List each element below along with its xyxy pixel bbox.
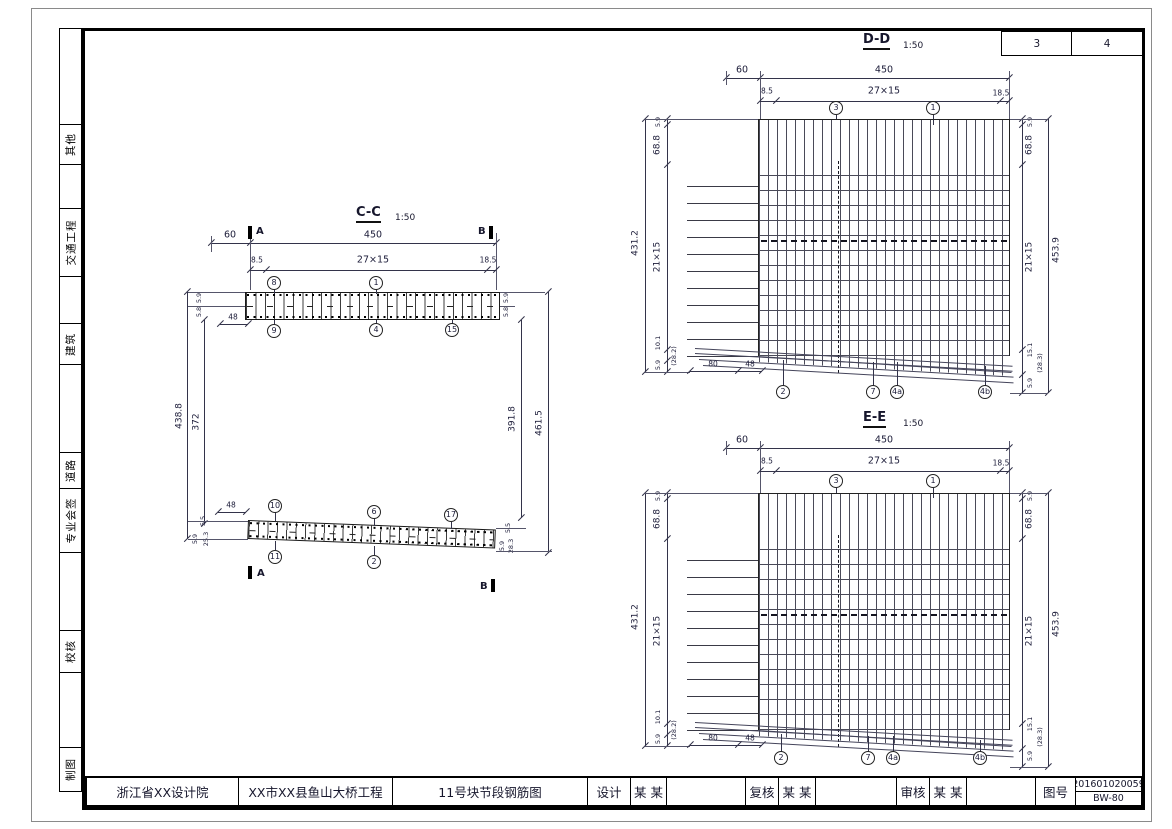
dim-label: 10.1 [655, 710, 662, 724]
bar-callout: 7 [866, 385, 880, 399]
sidebar-item-countersign: 专业会签 [59, 488, 82, 553]
dim-line-h [218, 512, 246, 513]
dim-label: 453.9 [1053, 611, 1062, 637]
sidebar-item-road: 道路 [59, 452, 82, 490]
dim-line-v [1022, 493, 1023, 767]
dim-label: 8.5 [251, 257, 263, 265]
ext-line [188, 306, 245, 307]
dim-label: 5.8 [503, 307, 510, 317]
sidebar-empty-cell [59, 276, 82, 324]
grid-vertical-bars [759, 494, 1009, 540]
sidebar-label: 制图 [63, 758, 78, 781]
sidebar-empty-cell [59, 28, 82, 125]
dim-label: 15.1 [1027, 717, 1034, 731]
bar-callout: 4b [973, 751, 987, 765]
dim-label: (28.2) [671, 346, 678, 366]
sidebar-item-traffic: 交通工程 [59, 208, 82, 278]
page-number: 4 [1104, 38, 1111, 50]
dim-line-v [667, 119, 668, 372]
page-number: 3 [1034, 38, 1041, 50]
sidebar-item-architecture: 建筑 [59, 323, 82, 366]
stirrup-centerline [838, 535, 839, 747]
ext-line [188, 521, 248, 522]
design-name-cell: 某 某 [630, 778, 666, 805]
cut-letter: B [478, 226, 486, 237]
bar-callout: 3 [829, 474, 843, 488]
bar-callout: 3 [829, 101, 843, 115]
ext-line [496, 551, 552, 552]
section-title-dd: D-D [863, 32, 890, 50]
dim-label: 48 [745, 361, 755, 369]
bar-callout: 1 [369, 276, 383, 290]
dim-line-h [760, 101, 1009, 102]
cad-sheet: 其他 交通工程 建筑 道路 专业会签 校核 制图 3 4 C-C 1:50 60… [0, 0, 1172, 829]
protruding-bars-left [687, 546, 758, 731]
dim-label: 68.8 [1026, 509, 1035, 529]
dim-label: 60 [224, 231, 236, 241]
review-name: 某 某 [934, 782, 963, 801]
dim-label: 80 [708, 735, 718, 743]
dim-line-v [645, 493, 646, 746]
dim-label: 5.9 [1027, 378, 1034, 388]
dim-line-v [187, 292, 188, 539]
dim-label: 21×15 [1026, 616, 1035, 646]
dim-label: 48 [745, 735, 755, 743]
sidebar-item-drafting: 制图 [59, 747, 82, 792]
design-name: 某 某 [634, 782, 663, 801]
bar-callout: 9 [267, 324, 281, 338]
dim-label: 461.5 [536, 410, 545, 436]
leader-line [868, 736, 869, 752]
bar-callout: 2 [774, 751, 788, 765]
section-title-ee: E-E [863, 410, 886, 428]
figno-value-cell: 201601020059 BW-80 [1075, 778, 1141, 805]
dim-label: 68.8 [654, 509, 663, 529]
dim-line-v [667, 493, 668, 746]
dim-label: 60 [736, 66, 748, 76]
dim-line-v [1022, 119, 1023, 393]
recheck-label: 复核 [749, 782, 774, 801]
dim-label: 27×15 [868, 87, 900, 97]
bar-callout: 7 [861, 751, 875, 765]
dashed-bar-row [761, 240, 1007, 242]
hatch-dots [247, 316, 498, 318]
sidebar-empty-cell [59, 164, 82, 209]
dim-line-v [204, 320, 205, 524]
ext-line [645, 372, 690, 373]
leader-line [374, 546, 375, 555]
ext-line [645, 119, 758, 120]
design-label-cell: 设计 [587, 778, 630, 805]
bar-callout: 17 [444, 508, 458, 522]
review-name-cell: 某 某 [929, 778, 966, 805]
dim-line-v [548, 292, 549, 553]
sidebar-item-other: 其他 [59, 124, 82, 166]
dim-label: 5.8 [196, 307, 203, 317]
scale-label: 1:50 [903, 41, 923, 51]
sidebar-empty-cell [59, 552, 82, 632]
leader-line [781, 734, 782, 752]
grid-vertical-bars [759, 120, 1009, 166]
ext-line [645, 493, 758, 494]
recheck-name-cell: 某 某 [778, 778, 815, 805]
sidebar: 其他 交通工程 建筑 道路 专业会签 校核 制图 [59, 28, 82, 810]
dim-label: 453.9 [1053, 237, 1062, 263]
drawing-title: 11号块节段钢筋图 [438, 782, 541, 801]
title-block: 浙江省XX设计院 XX市XX县鱼山大桥工程 11号块节段钢筋图 设计 某 某 复… [85, 776, 1143, 807]
dim-label: 431.2 [632, 604, 641, 630]
drawing-title-cell: 11号块节段钢筋图 [392, 778, 587, 805]
dim-label: 18.5 [480, 257, 497, 265]
dim-line-h [211, 243, 496, 244]
dim-line-h [726, 78, 1009, 79]
dim-line-h [250, 270, 496, 271]
dim-label: 48 [226, 502, 236, 510]
dim-line-v [1048, 493, 1049, 767]
dim-line-h [690, 371, 762, 372]
dim-label: 18.5 [993, 90, 1010, 98]
dim-label: 5.9 [499, 541, 506, 551]
dim-label: 450 [875, 66, 893, 76]
dim-line-h [760, 471, 1009, 472]
dim-label: 68.8 [1026, 135, 1035, 155]
bar-callout: 15 [445, 323, 459, 337]
ee-rebar-grid [758, 493, 1010, 730]
sidebar-label: 其他 [63, 133, 78, 156]
bar-callout: 11 [268, 550, 282, 564]
bar-callout: 1 [926, 101, 940, 115]
bar-callout: 1 [926, 474, 940, 488]
dim-line-v [645, 119, 646, 372]
figno-line1: 201601020059 [1076, 778, 1141, 792]
hatch-dots [247, 294, 498, 296]
org-cell: 浙江省XX设计院 [87, 778, 238, 805]
ext-line [188, 292, 245, 293]
ext-line [500, 292, 545, 293]
leader-line [275, 541, 276, 550]
sidebar-label: 道路 [63, 459, 78, 482]
bar-callout: 10 [268, 499, 282, 513]
dim-label: 372 [193, 413, 202, 430]
grid-mesh [759, 166, 1009, 356]
dim-line-v [521, 320, 522, 518]
dim-label: (28.2) [671, 720, 678, 740]
grid-mesh [759, 540, 1009, 730]
recheck-label-cell: 复核 [745, 778, 778, 805]
ext-line [188, 539, 248, 540]
ext-line [1010, 393, 1048, 394]
cut-letter: B [480, 581, 488, 592]
dim-label: 80 [708, 361, 718, 369]
dashed-bar-row [761, 614, 1007, 616]
dim-label: 450 [364, 231, 382, 241]
section-cut-mark [489, 226, 493, 239]
protruding-bars-left [687, 172, 758, 357]
dim-line-v [1048, 119, 1049, 393]
sidebar-label: 校核 [63, 640, 78, 663]
figno-label-cell: 图号 [1035, 778, 1075, 805]
dim-label: 10.1 [655, 336, 662, 350]
signature-blank-cell [966, 778, 1035, 805]
dim-label: 68.8 [654, 135, 663, 155]
dim-label: 15.1 [1027, 343, 1034, 357]
ext-line [645, 746, 690, 747]
sidebar-label: 交通工程 [63, 220, 78, 266]
section-cut-mark [491, 579, 495, 592]
section-cut-mark [248, 566, 252, 579]
leader-line [275, 512, 276, 521]
ext-line [1010, 493, 1048, 494]
leader-line [374, 518, 375, 526]
dim-label: 431.2 [632, 230, 641, 256]
sidebar-label: 专业会签 [63, 498, 78, 544]
dim-label: 48 [228, 314, 238, 322]
leader-line [783, 360, 784, 388]
bar-callout: 4a [890, 385, 904, 399]
dim-label: 5.9 [655, 360, 662, 370]
dim-label: 21×15 [654, 242, 663, 272]
sidebar-label: 建筑 [63, 333, 78, 356]
bar-callout: 8 [267, 276, 281, 290]
page-number-cell: 4 [1071, 31, 1143, 56]
dim-label: 391.8 [509, 406, 518, 432]
figno-label: 图号 [1043, 782, 1068, 801]
signature-blank-cell [666, 778, 745, 805]
bar-callout: 4a [886, 751, 900, 765]
dim-label: 8.5 [761, 88, 773, 96]
project-cell: XX市XX县鱼山大桥工程 [238, 778, 392, 805]
cut-letter: A [256, 226, 264, 237]
dim-label: 21×15 [654, 616, 663, 646]
dim-label: 5.9 [655, 734, 662, 744]
section-title-cc: C-C [356, 205, 381, 223]
sheet-page-cells: 3 4 [1001, 31, 1143, 56]
bar-callout: 2 [367, 555, 381, 569]
bar-callout: 4 [369, 323, 383, 337]
ext-line [1010, 767, 1048, 768]
bar-callout: 4b [978, 385, 992, 399]
page-number-cell: 3 [1001, 31, 1073, 56]
dim-label: 5.9 [503, 293, 510, 303]
dim-label: (28.3) [1037, 353, 1044, 373]
sidebar-item-proofread: 校核 [59, 630, 82, 673]
ext-line [760, 441, 761, 493]
signature-blank-cell [815, 778, 896, 805]
ext-line [211, 236, 212, 252]
dd-rebar-grid [758, 119, 1010, 356]
ext-line [1010, 119, 1048, 120]
ext-line [726, 71, 727, 85]
scale-label: 1:50 [395, 213, 415, 223]
dim-line-h [220, 324, 248, 325]
top-slab-rebar-band [245, 292, 500, 320]
mid-bar-line [247, 306, 498, 307]
dim-label: 27×15 [357, 256, 389, 266]
dim-label: 60 [736, 436, 748, 446]
dim-label: 21×15 [1026, 242, 1035, 272]
scale-label: 1:50 [903, 419, 923, 429]
cut-letter: A [257, 568, 265, 579]
ext-line [500, 306, 515, 307]
dim-label: 8.5 [761, 458, 773, 466]
dim-line-h [726, 448, 1009, 449]
design-label: 设计 [596, 782, 621, 801]
dim-label: 450 [875, 436, 893, 446]
dim-label: (28.3) [1037, 727, 1044, 747]
sidebar-empty-cell [59, 364, 82, 453]
ext-line [496, 528, 526, 529]
figno-line2: BW-80 [1076, 792, 1141, 805]
leader-line [451, 522, 452, 529]
org-name: 浙江省XX设计院 [116, 782, 208, 801]
stirrup-centerline [838, 161, 839, 373]
recheck-name: 某 某 [783, 782, 812, 801]
dim-label: 5.9 [196, 293, 203, 303]
ext-line [726, 441, 727, 455]
project-name: XX市XX县鱼山大桥工程 [248, 782, 382, 801]
dim-label: 18.5 [993, 460, 1010, 468]
bar-callout: 6 [367, 505, 381, 519]
dim-label: 5.9 [1027, 751, 1034, 761]
leader-line [893, 736, 894, 752]
review-label-cell: 审核 [896, 778, 929, 805]
dim-label: 27×15 [868, 457, 900, 467]
sidebar-empty-cell [59, 672, 82, 749]
review-label: 审核 [900, 782, 925, 801]
dim-label: 438.8 [176, 403, 185, 429]
bar-callout: 2 [776, 385, 790, 399]
section-cut-mark [248, 226, 252, 239]
dim-line-h [690, 745, 762, 746]
